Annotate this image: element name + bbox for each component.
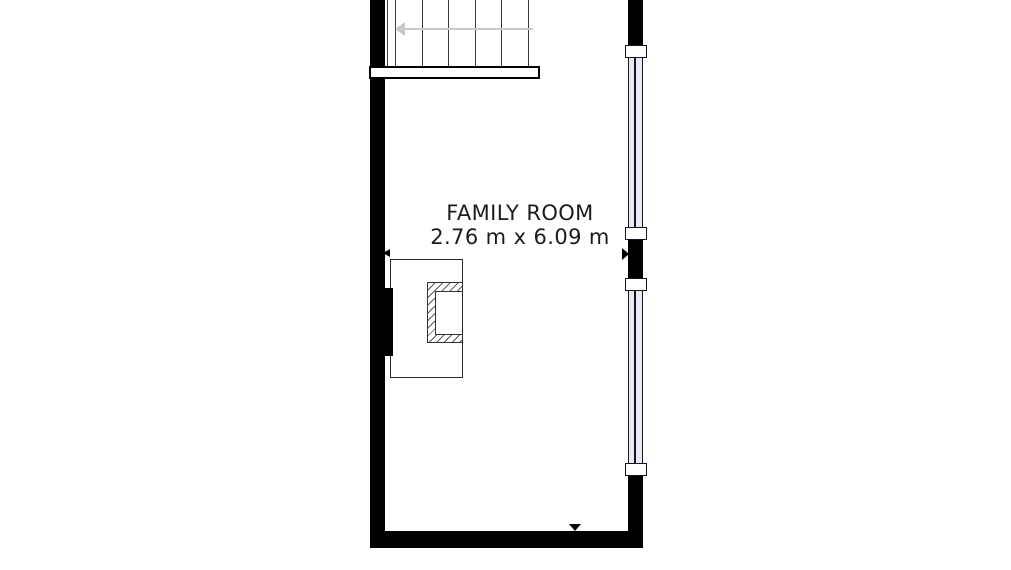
entry-marker-down-icon [569, 524, 581, 531]
room-label-group: FAMILY ROOM 2.76 m x 6.09 m [420, 201, 620, 250]
room-name: FAMILY ROOM [420, 201, 620, 225]
window-sill [625, 463, 647, 476]
wall-left [370, 0, 385, 548]
wall-bottom [370, 531, 643, 548]
fireplace-outline [390, 259, 463, 378]
window-lower [625, 278, 645, 476]
entry-marker-left-icon [383, 249, 390, 257]
stair-tread-line [501, 0, 502, 66]
window-glass [628, 55, 643, 230]
stair-direction-arrow-icon [404, 28, 533, 30]
window-sill [625, 278, 647, 291]
window-sill [625, 227, 647, 240]
window-glass [628, 288, 643, 466]
stair-tread-line [422, 0, 423, 66]
wall-right-upper [628, 0, 643, 45]
wall-right-middle [628, 240, 643, 278]
entry-marker-right-icon [622, 248, 629, 260]
room-dimensions: 2.76 m x 6.09 m [420, 225, 620, 250]
window-upper [625, 45, 645, 240]
stair-direction-arrow-icon [395, 22, 405, 36]
chimney-breast [384, 288, 393, 356]
window-sill [625, 45, 647, 58]
window-mullion [634, 288, 636, 466]
window-mullion [634, 55, 636, 230]
floorplan-canvas: FAMILY ROOM 2.76 m x 6.09 m [0, 0, 1011, 570]
stair-tread-line [448, 0, 449, 66]
stair-landing [369, 66, 540, 79]
stair-tread-line [528, 0, 529, 66]
stair-side-line [387, 0, 388, 66]
stair-tread-line [475, 0, 476, 66]
